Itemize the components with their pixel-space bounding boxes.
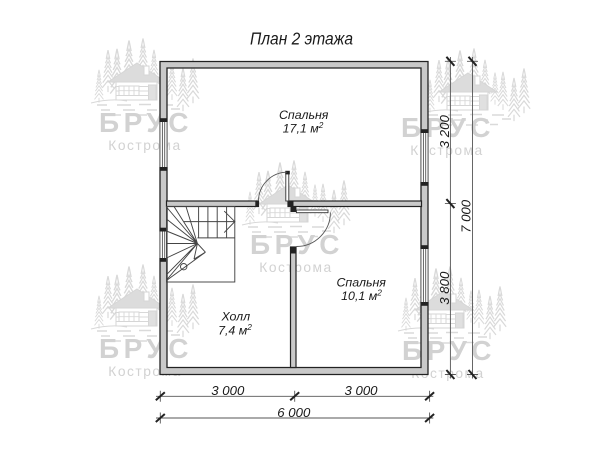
svg-text:10,1 м2: 10,1 м2 xyxy=(341,288,382,304)
svg-text:3 800: 3 800 xyxy=(437,271,452,305)
svg-text:Холл: Холл xyxy=(221,310,251,324)
svg-text:7,4 м2: 7,4 м2 xyxy=(218,322,252,338)
svg-text:3 000: 3 000 xyxy=(211,383,245,398)
svg-text:3 000: 3 000 xyxy=(344,383,378,398)
svg-text:6 000: 6 000 xyxy=(277,405,311,420)
svg-text:3 200: 3 200 xyxy=(437,115,452,149)
svg-text:17,1 м2: 17,1 м2 xyxy=(283,120,324,136)
svg-text:7 000: 7 000 xyxy=(458,199,473,233)
svg-text:План 2 этажа: План 2 этажа xyxy=(250,28,353,48)
